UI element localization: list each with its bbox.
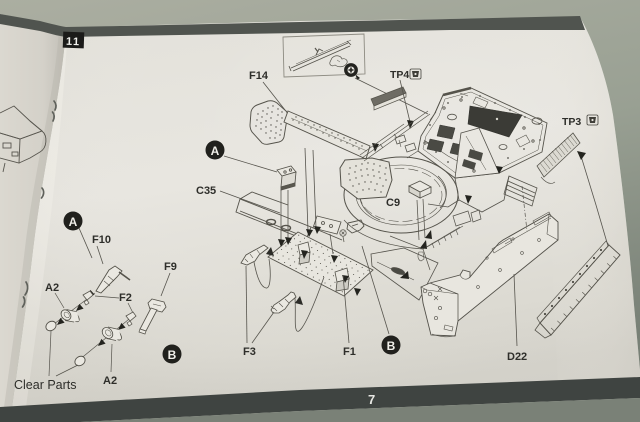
svg-text:TP3: TP3 bbox=[562, 116, 581, 128]
svg-text:B: B bbox=[168, 348, 177, 362]
svg-text:B: B bbox=[387, 339, 396, 353]
svg-text:TP4: TP4 bbox=[390, 69, 409, 81]
svg-text:11: 11 bbox=[66, 36, 81, 49]
svg-text:A: A bbox=[69, 215, 78, 229]
svg-text:C35: C35 bbox=[196, 185, 216, 197]
svg-text:A2: A2 bbox=[45, 282, 59, 294]
svg-text:F9: F9 bbox=[164, 261, 177, 273]
svg-text:Clear Parts: Clear Parts bbox=[14, 378, 77, 392]
svg-text:A: A bbox=[211, 144, 220, 158]
svg-text:7: 7 bbox=[368, 392, 375, 407]
svg-text:A2: A2 bbox=[103, 375, 117, 387]
svg-text:F14: F14 bbox=[249, 70, 269, 82]
svg-text:C9: C9 bbox=[386, 197, 400, 209]
svg-text:F10: F10 bbox=[92, 234, 111, 246]
svg-text:F2: F2 bbox=[119, 292, 132, 304]
svg-text:D22: D22 bbox=[507, 351, 527, 363]
svg-text:F1: F1 bbox=[343, 346, 356, 358]
svg-text:F3: F3 bbox=[243, 346, 256, 358]
